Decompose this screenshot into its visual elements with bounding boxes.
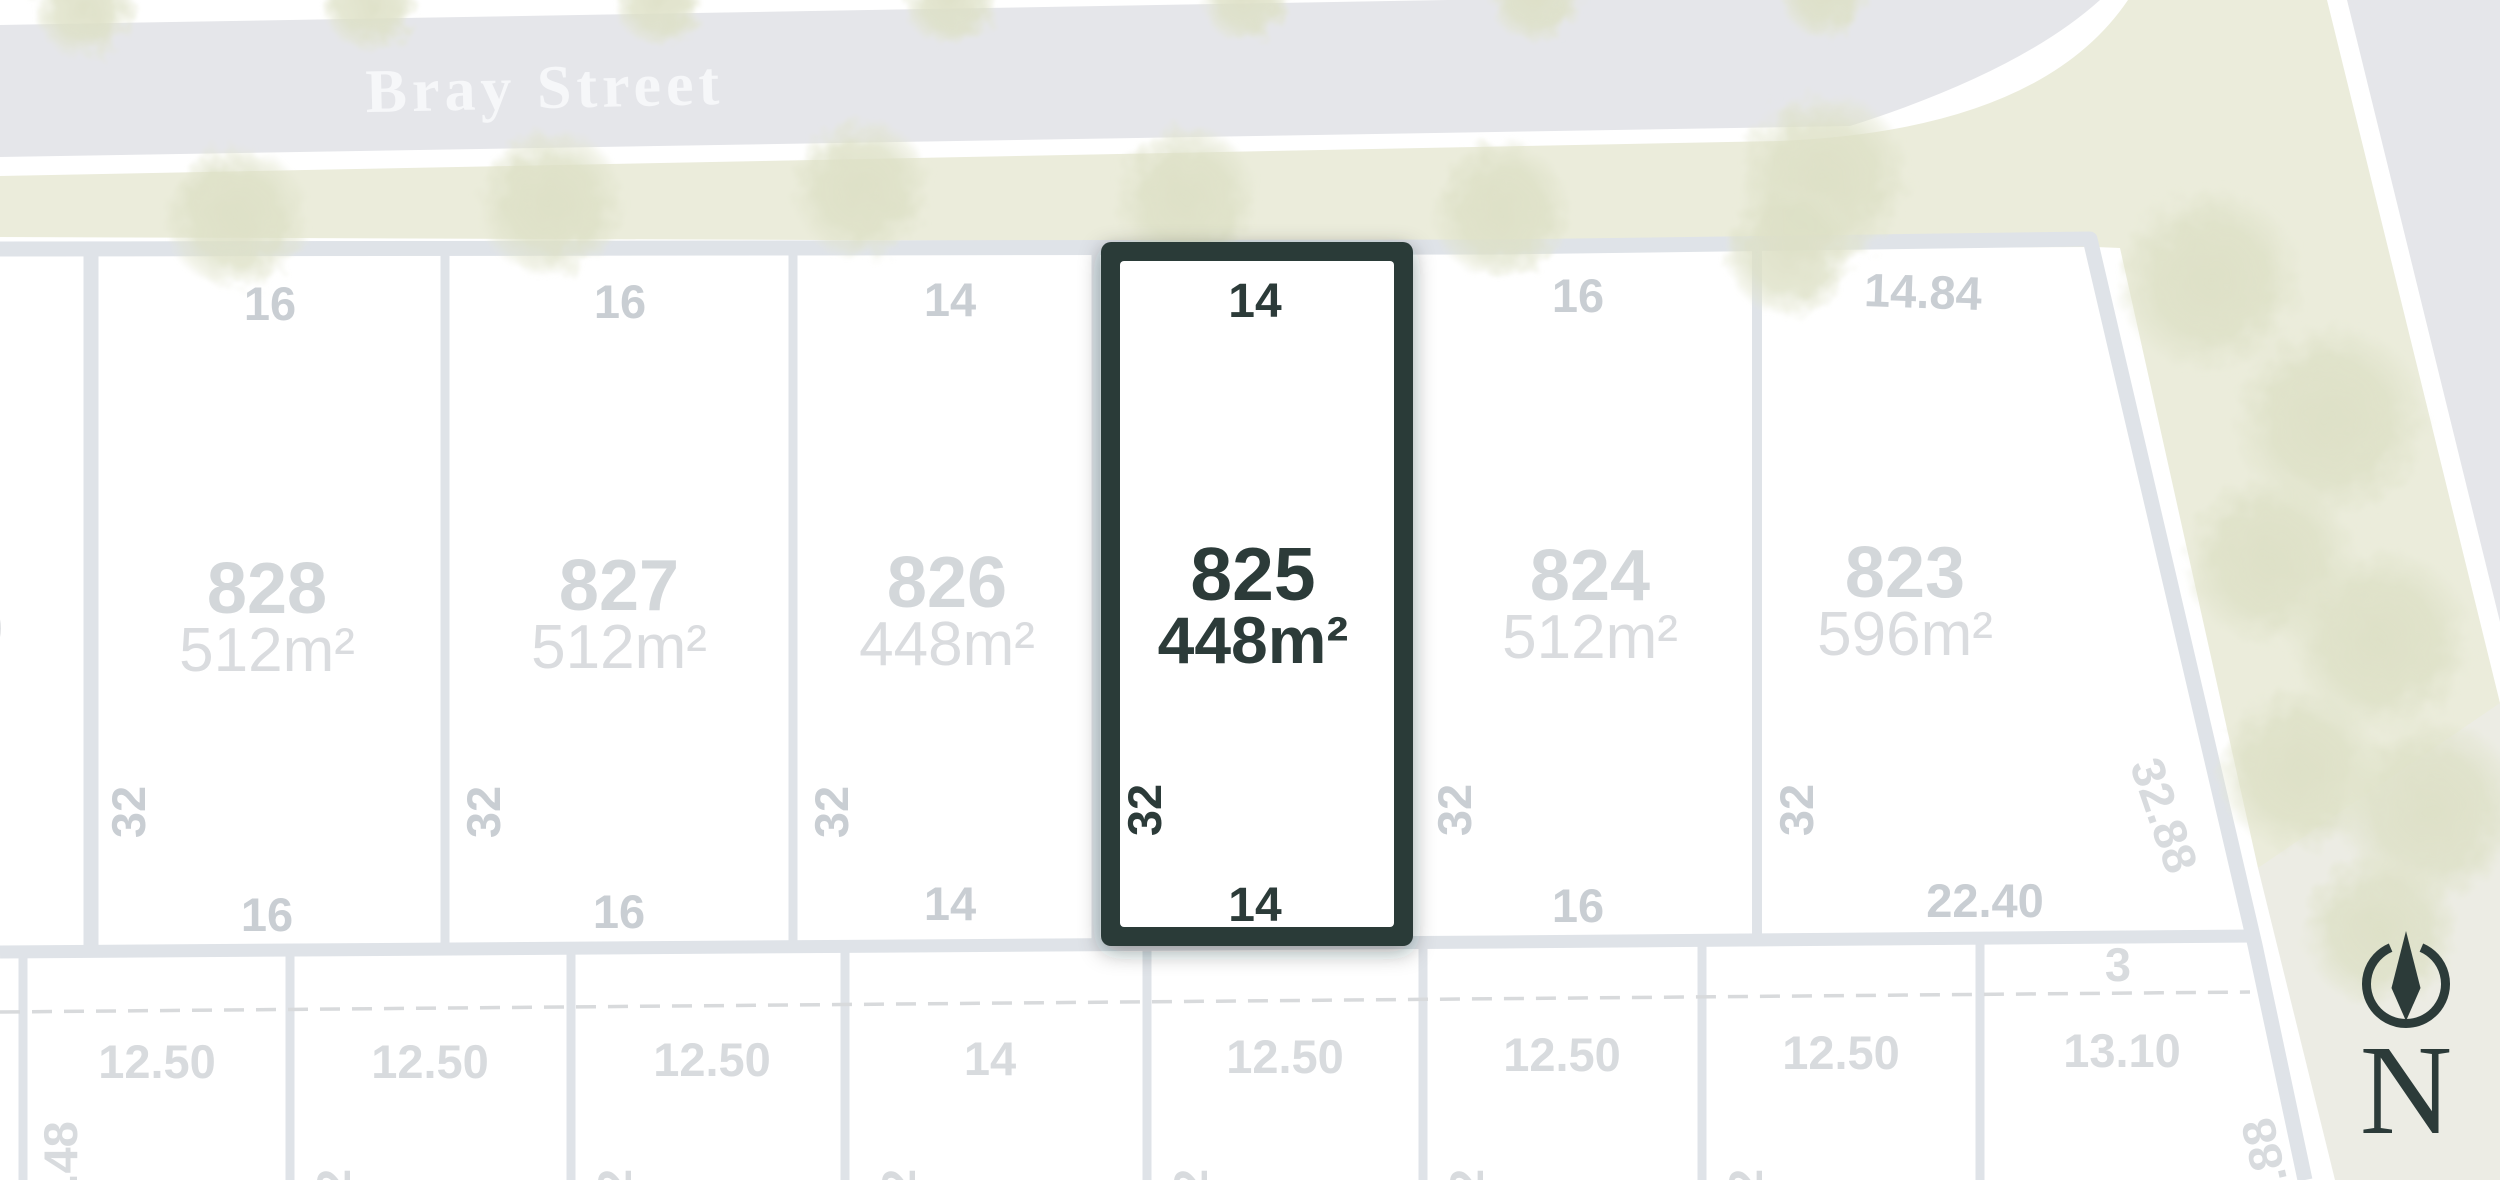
svg-text:32: 32 — [457, 786, 510, 838]
svg-text:16: 16 — [1552, 269, 1604, 322]
svg-text:13.10: 13.10 — [2063, 1024, 2181, 1077]
svg-text:32: 32 — [307, 1169, 360, 1180]
svg-text:32: 32 — [1164, 1169, 1217, 1180]
svg-text:14: 14 — [964, 1032, 1016, 1085]
svg-text:32: 32 — [1770, 784, 1823, 836]
svg-text:Bray Street: Bray Street — [365, 50, 725, 126]
svg-text:32: 32 — [1440, 1169, 1493, 1180]
svg-text:14: 14 — [924, 877, 976, 930]
svg-text:16: 16 — [594, 275, 646, 328]
svg-text:3: 3 — [2105, 938, 2131, 991]
svg-text:32: 32 — [1719, 1169, 1772, 1180]
svg-text:512m²: 512m² — [179, 616, 355, 685]
svg-text:448m²: 448m² — [1158, 603, 1349, 677]
svg-text:12.50: 12.50 — [98, 1035, 216, 1088]
svg-text:16: 16 — [593, 885, 645, 938]
svg-text:12.50: 12.50 — [371, 1035, 489, 1088]
svg-text:512m²: 512m² — [1502, 603, 1678, 672]
svg-text:0: 0 — [0, 595, 3, 664]
svg-text:14: 14 — [924, 273, 976, 326]
svg-text:14.84: 14.84 — [1863, 263, 1982, 320]
svg-text:512m²: 512m² — [531, 613, 707, 682]
svg-text:14: 14 — [1228, 879, 1282, 932]
svg-text:596m²: 596m² — [1817, 600, 1993, 669]
svg-text:12.50: 12.50 — [653, 1033, 771, 1086]
svg-text:N: N — [2360, 1019, 2452, 1161]
svg-text:12.50: 12.50 — [1226, 1030, 1344, 1083]
svg-text:448m²: 448m² — [859, 610, 1035, 679]
svg-text:32: 32 — [805, 786, 858, 838]
svg-text:12.50: 12.50 — [1782, 1026, 1900, 1079]
svg-text:22.40: 22.40 — [1926, 874, 2044, 927]
svg-text:14: 14 — [1228, 275, 1282, 328]
svg-text:32: 32 — [872, 1169, 925, 1180]
svg-text:32: 32 — [1428, 784, 1481, 836]
svg-text:12.50: 12.50 — [1503, 1028, 1621, 1081]
svg-text:16: 16 — [1552, 879, 1604, 932]
svg-text:32.48: 32.48 — [34, 1121, 87, 1180]
svg-text:16: 16 — [241, 888, 293, 941]
svg-text:32: 32 — [588, 1169, 641, 1180]
svg-text:32: 32 — [102, 786, 155, 838]
svg-text:32: 32 — [1118, 784, 1171, 836]
